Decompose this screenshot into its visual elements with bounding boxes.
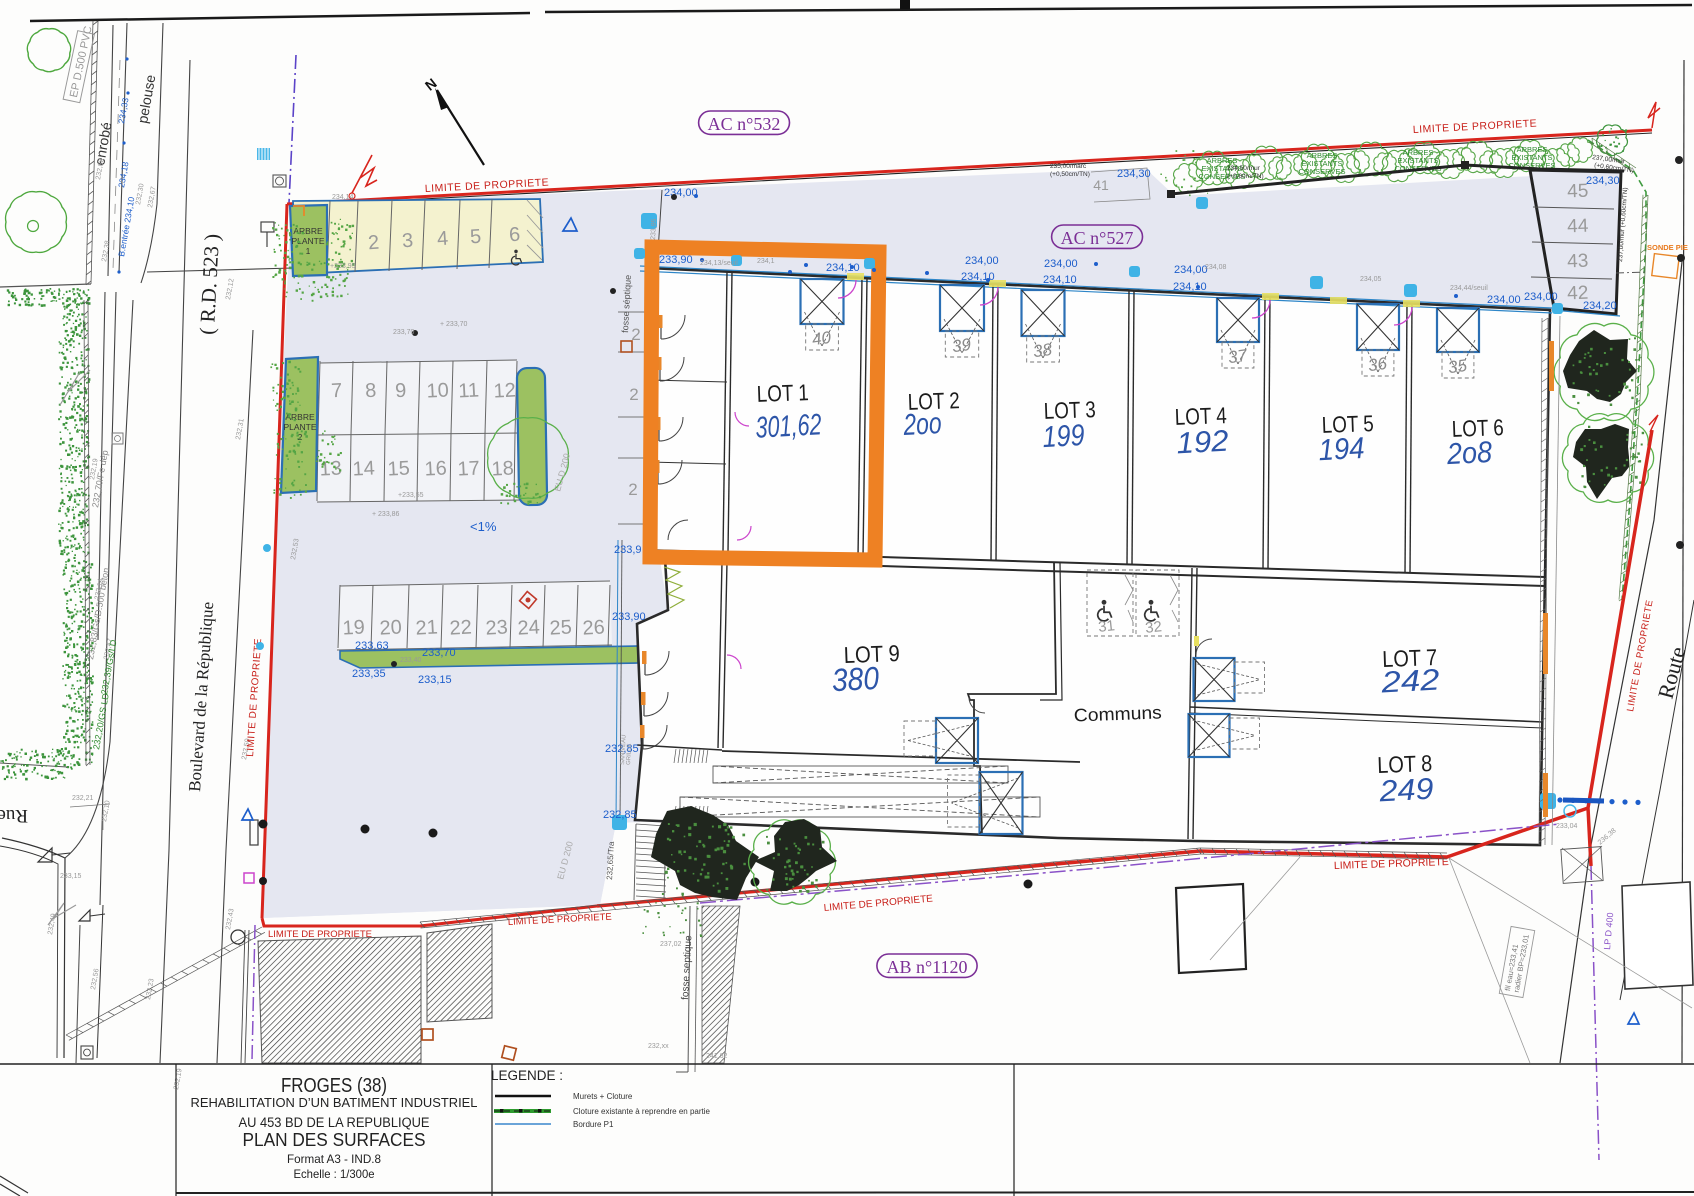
- svg-text:41: 41: [1093, 177, 1109, 193]
- svg-text:26: 26: [582, 616, 605, 639]
- svg-text:234,00: 234,00: [664, 187, 698, 199]
- svg-text:14: 14: [352, 457, 375, 480]
- svg-text:+ 233,70: + 233,70: [440, 321, 468, 328]
- svg-text:233,90: 233,90: [612, 611, 646, 623]
- svg-text:32: 32: [1144, 618, 1162, 637]
- svg-text:5: 5: [469, 226, 482, 249]
- svg-text:233,95: 233,95: [650, 218, 658, 240]
- svg-text:12: 12: [493, 379, 516, 402]
- svg-text:234,1: 234,1: [757, 258, 775, 265]
- svg-text:40: 40: [811, 328, 833, 350]
- svg-text:233,70: 233,70: [422, 647, 456, 659]
- svg-text:235,00/marc: 235,00/marc: [1050, 163, 1087, 170]
- svg-text:21: 21: [415, 616, 438, 639]
- svg-text:234,20: 234,20: [1583, 300, 1617, 312]
- svg-text:301,62: 301,62: [755, 408, 823, 444]
- svg-text:233,9: 233,9: [614, 544, 642, 556]
- svg-text:249: 249: [1378, 773, 1435, 809]
- svg-text:2oo: 2oo: [902, 407, 942, 442]
- svg-text:GRILLE: GRILLE: [626, 743, 633, 765]
- svg-text:9: 9: [395, 380, 407, 403]
- svg-text:232,21: 232,21: [72, 795, 94, 802]
- svg-text:2: 2: [367, 232, 380, 255]
- svg-text:233,90: 233,90: [659, 254, 693, 266]
- svg-text:233,63: 233,63: [355, 640, 389, 652]
- svg-text:Echelle : 1/300e: Echelle : 1/300e: [294, 1167, 375, 1181]
- svg-text:234,05: 234,05: [1360, 276, 1382, 283]
- svg-text:6: 6: [508, 224, 521, 247]
- svg-text:234,00: 234,00: [1487, 294, 1521, 306]
- svg-text:7: 7: [331, 380, 343, 403]
- svg-text:AC n°527: AC n°527: [1061, 228, 1134, 248]
- svg-text:4: 4: [436, 228, 449, 251]
- svg-text:10: 10: [426, 379, 449, 402]
- svg-text:20: 20: [379, 616, 402, 639]
- svg-text:Communs: Communs: [1073, 702, 1162, 725]
- svg-text:22: 22: [449, 616, 472, 639]
- svg-text:237,02: 237,02: [660, 941, 682, 948]
- svg-text:234,08: 234,08: [1205, 264, 1227, 271]
- svg-text:2: 2: [628, 480, 637, 499]
- svg-text:234,00: 234,00: [1044, 258, 1078, 270]
- svg-text:234,30: 234,30: [1586, 175, 1620, 187]
- svg-text:19: 19: [342, 616, 365, 639]
- svg-text:234,10: 234,10: [1173, 281, 1207, 293]
- svg-text:24: 24: [517, 616, 540, 639]
- svg-text:AC n°532: AC n°532: [708, 114, 781, 134]
- svg-text:LEGENDE :: LEGENDE :: [491, 1068, 563, 1083]
- svg-text:25: 25: [549, 616, 572, 639]
- svg-text:CONSERVES: CONSERVES: [1299, 167, 1346, 176]
- svg-text:232,85: 232,85: [603, 809, 637, 821]
- svg-text:234,50/mur: 234,50/mur: [1227, 165, 1261, 172]
- svg-text:2: 2: [629, 385, 638, 404]
- svg-text:11: 11: [458, 379, 480, 402]
- svg-text:39: 39: [951, 335, 973, 357]
- svg-text:Cloture existante à reprendre: Cloture existante à reprendre en partie: [573, 1107, 711, 1116]
- svg-text:SONDE PIE: SONDE PIE: [1647, 243, 1688, 252]
- svg-text:16: 16: [424, 457, 447, 480]
- svg-text:38: 38: [1032, 340, 1054, 362]
- svg-text:<1%: <1%: [470, 519, 497, 534]
- svg-text:242: 242: [1380, 663, 1441, 699]
- svg-text:LOT 1: LOT 1: [756, 379, 809, 407]
- svg-text:FROGES (38): FROGES (38): [281, 1075, 387, 1097]
- svg-text:ARBRE: ARBRE: [293, 226, 323, 236]
- svg-text:2o8: 2o8: [1445, 436, 1493, 471]
- svg-text:17: 17: [457, 457, 480, 480]
- svg-text:234,10: 234,10: [1043, 274, 1077, 286]
- svg-text:36: 36: [1367, 354, 1389, 376]
- svg-text:241,62: 241,62: [706, 1053, 728, 1060]
- svg-text:234,30: 234,30: [1117, 168, 1151, 180]
- svg-text:199: 199: [1042, 419, 1086, 454]
- svg-text:PLANTE: PLANTE: [283, 422, 316, 432]
- svg-text:REHABILITATION D’UN BATIMENT I: REHABILITATION D’UN BATIMENT INDUSTRIEL: [191, 1095, 478, 1110]
- svg-text:37: 37: [1227, 346, 1249, 368]
- svg-text:(+0,60m/TN): (+0,60m/TN): [1227, 173, 1264, 180]
- svg-text:PLAN DES SURFACES: PLAN DES SURFACES: [243, 1130, 426, 1150]
- svg-text:13: 13: [319, 457, 342, 480]
- svg-text:+233,95: +233,95: [330, 263, 356, 270]
- svg-text:Rue: Rue: [0, 805, 28, 826]
- svg-text:233,40: 233,40: [400, 657, 422, 664]
- svg-text:15: 15: [387, 457, 410, 480]
- svg-text:+ 233,86: + 233,86: [372, 511, 400, 518]
- svg-text:234,10: 234,10: [961, 271, 995, 283]
- svg-text:Murets + Cloture: Murets + Cloture: [573, 1092, 633, 1101]
- svg-text:(+0,50cm/TN): (+0,50cm/TN): [1050, 171, 1090, 178]
- svg-text:18: 18: [491, 457, 514, 480]
- svg-text:31: 31: [1097, 617, 1115, 636]
- svg-text:43: 43: [1567, 251, 1589, 273]
- svg-text:23: 23: [485, 616, 508, 639]
- svg-text:233,35: 233,35: [352, 668, 386, 680]
- svg-text:234,10: 234,10: [826, 262, 860, 274]
- svg-text:233,70: 233,70: [393, 329, 415, 336]
- svg-text:234,00: 234,00: [1174, 264, 1208, 276]
- svg-text:192: 192: [1176, 425, 1230, 461]
- svg-text:233,04: 233,04: [1556, 823, 1578, 830]
- svg-text:234,00: 234,00: [1524, 291, 1558, 303]
- svg-text:44: 44: [1567, 216, 1589, 238]
- svg-text:35: 35: [1447, 356, 1469, 378]
- svg-text:1: 1: [306, 246, 311, 256]
- svg-text:Format A3 - IND.8: Format A3 - IND.8: [287, 1152, 381, 1166]
- svg-text:AU 453 BD DE LA REPUBLIQUE: AU 453 BD DE LA REPUBLIQUE: [239, 1115, 430, 1130]
- svg-text:234,44/seuil: 234,44/seuil: [1450, 285, 1488, 292]
- svg-text:234,13/seuil: 234,13/seuil: [700, 260, 738, 267]
- svg-text:380: 380: [831, 660, 880, 698]
- svg-text:+233,55: +233,55: [398, 492, 424, 499]
- svg-text:234,00: 234,00: [965, 255, 999, 267]
- svg-text:233,15: 233,15: [418, 674, 452, 686]
- svg-text:PLANTE: PLANTE: [291, 236, 324, 246]
- svg-text:232,xx: 232,xx: [648, 1043, 669, 1050]
- svg-text:Bordure P1: Bordure P1: [573, 1120, 614, 1129]
- svg-text:8: 8: [365, 380, 377, 403]
- svg-text:3: 3: [401, 230, 414, 253]
- svg-text:194: 194: [1318, 432, 1366, 467]
- svg-text:AB n°1120: AB n°1120: [886, 957, 967, 977]
- svg-text:233,15: 233,15: [60, 873, 82, 880]
